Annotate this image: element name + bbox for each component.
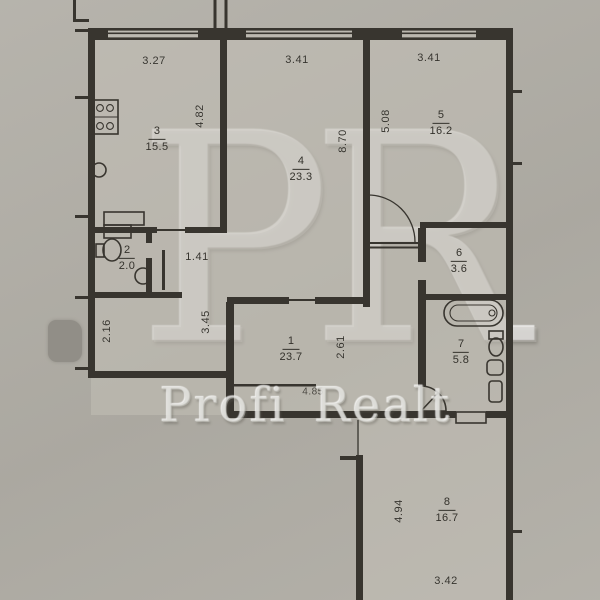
wall-segment: [356, 455, 363, 600]
wall-segment: [220, 40, 227, 233]
wall-segment: [185, 227, 227, 233]
wall-segment: [506, 28, 513, 600]
room-2-number: 2: [119, 244, 135, 259]
wall-segment: [418, 300, 426, 386]
dim-room3-width: 3.27: [142, 55, 165, 67]
dim-room4-width: 3.41: [285, 54, 308, 66]
room-4-area: 23.3: [289, 170, 312, 184]
room-5-label: 5 16.2: [429, 109, 452, 137]
wall-segment: [226, 302, 234, 418]
room-7-label: 7 5.8: [453, 338, 470, 366]
dim-hall-depth: 2.61: [335, 335, 347, 358]
door-opening: [289, 299, 315, 301]
dim-nook-height: 3.45: [200, 310, 212, 333]
room-1-area: 23.7: [279, 350, 302, 364]
wall-segment: [146, 233, 152, 243]
window: [246, 33, 352, 35]
wall-segment: [88, 371, 234, 378]
door-leaf: [162, 250, 165, 290]
wall-segment: [357, 420, 359, 455]
dim-hall-niche: 1.41: [185, 251, 208, 263]
room-1-number: 1: [283, 335, 299, 350]
room-4-number: 4: [293, 155, 309, 170]
room-6-label: 6 3.6: [451, 247, 468, 275]
room-8-number: 8: [439, 496, 455, 511]
floorplan-page: PR: [0, 0, 600, 600]
door-opening: [157, 229, 185, 231]
dimension-tick: [513, 162, 522, 165]
dim-nook-depth: 2.16: [101, 319, 113, 342]
window: [108, 33, 198, 35]
room-3-number: 3: [149, 125, 165, 140]
wall-segment: [225, 0, 228, 30]
door-leaf: [368, 247, 418, 249]
room-7-number: 7: [453, 338, 469, 353]
redaction-blob: [48, 320, 82, 362]
wall-segment: [73, 19, 89, 22]
wall-segment: [88, 28, 512, 31]
wall-segment: [73, 0, 76, 22]
room-7-area: 5.8: [453, 353, 470, 367]
floorplan-drawing: [0, 0, 600, 600]
room-8-label: 8 16.7: [435, 496, 458, 524]
dim-room5-width: 3.41: [417, 52, 440, 64]
dimension-tick: [75, 215, 88, 218]
room-5-area: 16.2: [429, 124, 452, 138]
dim-hall-width: 4.85: [302, 387, 323, 398]
dimension-tick: [513, 90, 522, 93]
room-2-area: 2.0: [119, 259, 136, 273]
room-6-number: 6: [451, 247, 467, 262]
dimension-tick: [75, 296, 88, 299]
door-leaf: [368, 242, 418, 244]
floor-fill-room8: [359, 415, 509, 600]
room-3-label: 3 15.5: [145, 125, 168, 153]
wall-segment: [420, 222, 506, 228]
room-3-area: 15.5: [145, 140, 168, 154]
wall-segment: [352, 28, 402, 40]
dimension-tick: [340, 456, 362, 460]
wall-segment: [227, 297, 289, 304]
wall-segment: [88, 28, 95, 378]
room-1-label: 1 23.7: [279, 335, 302, 363]
wall-segment: [198, 28, 246, 40]
wall-segment: [214, 0, 217, 30]
room-8-area: 16.7: [435, 511, 458, 525]
dimension-tick: [513, 530, 522, 533]
dim-room3-depth: 4.82: [194, 104, 206, 127]
dim-room4-depth: 8.70: [337, 129, 349, 152]
window: [402, 33, 476, 35]
wall-segment: [88, 37, 512, 40]
room-4-label: 4 23.3: [289, 155, 312, 183]
wall-segment: [418, 294, 506, 300]
wall-segment: [363, 40, 370, 307]
wall-segment: [88, 292, 182, 298]
dim-room5-depth: 5.08: [380, 109, 392, 132]
dimension-tick: [75, 29, 88, 32]
dim-room8-width: 3.42: [434, 575, 457, 587]
dimension-tick: [75, 367, 88, 370]
wall-segment: [418, 228, 426, 262]
wall-segment: [315, 297, 370, 304]
wall-segment: [226, 411, 456, 418]
dim-room8-depth: 4.94: [393, 499, 405, 522]
dimension-tick: [75, 96, 88, 99]
room-6-area: 3.6: [451, 262, 468, 276]
room-2-label: 2 2.0: [119, 244, 136, 272]
room-5-number: 5: [433, 109, 449, 124]
